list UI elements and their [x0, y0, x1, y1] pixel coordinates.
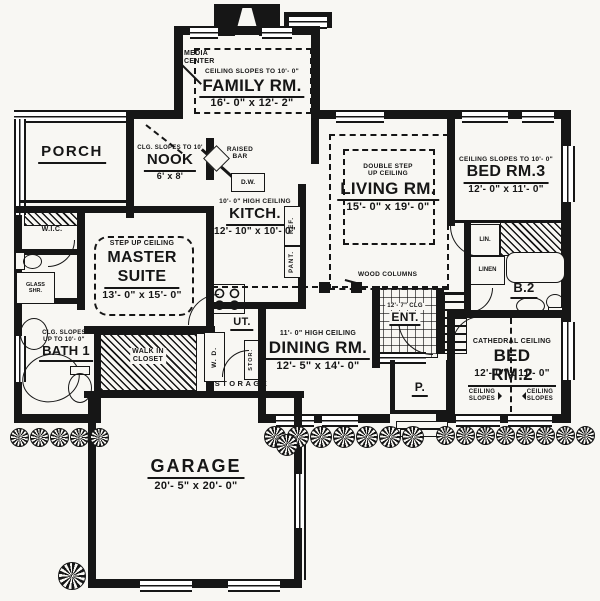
- slope-arrow-icon: [518, 392, 526, 400]
- living-room-dims: 15'- 0" x 19'- 0": [346, 201, 429, 213]
- entry-name: ENT.: [389, 311, 420, 326]
- wall: [447, 110, 455, 226]
- entry-ceiling-note: 12'- 7" CLG: [385, 303, 425, 310]
- window: [561, 146, 575, 202]
- door-swing: [48, 240, 75, 267]
- family-room-name: FAMILY RM.: [199, 76, 304, 98]
- linen-closet: LINEN: [470, 256, 505, 285]
- window: [190, 26, 218, 39]
- porch-name: PORCH: [38, 144, 106, 164]
- window: [462, 110, 508, 123]
- dining-ceiling-note: 11'- 0" HIGH CEILING: [280, 330, 356, 338]
- front-door: [380, 352, 426, 364]
- b2-name: B.2: [510, 281, 537, 299]
- wall: [174, 26, 183, 119]
- master-ceiling-note: STEP UP CEILING: [110, 240, 175, 248]
- window: [561, 322, 575, 380]
- wall: [14, 414, 96, 423]
- utility-name: UT.: [230, 316, 253, 331]
- door-swing: [222, 350, 249, 377]
- living-room-name: LIVING RM.: [337, 179, 439, 201]
- shrub: [58, 562, 86, 590]
- pantry: PANT.: [284, 246, 301, 278]
- wall: [84, 391, 304, 398]
- stor-label: STOR.: [248, 349, 254, 371]
- shrub: [276, 434, 298, 456]
- linen-label: LINEN: [479, 267, 497, 274]
- garage-name: GARAGE: [147, 456, 244, 479]
- stairs: [444, 292, 467, 354]
- bed3-name: BED RM.3: [464, 163, 549, 184]
- glass-shower: GLASS SHR.: [16, 272, 55, 304]
- garage-dims: 20'- 5" x 20'- 0": [154, 480, 237, 492]
- bed2-name: BED RM.2: [468, 346, 556, 387]
- porch-edge: [390, 410, 451, 414]
- bath1-name: BATH 1: [39, 344, 93, 362]
- closet-hatch: [24, 212, 78, 226]
- bed2-slope-left: CEILING SLOPES: [469, 389, 495, 402]
- toilet: [23, 254, 42, 269]
- wall: [77, 210, 85, 310]
- family-room-dims: 16'- 0" x 12'- 2": [210, 97, 293, 109]
- nook-dims: 6' x 8': [157, 171, 183, 181]
- window: [522, 110, 554, 123]
- dining-name: DINING RM.: [266, 338, 370, 360]
- bath1-ceiling-note: CLG. SLOPES UP TO 10'- 0": [42, 330, 86, 343]
- dishwasher-label: D.W.: [241, 179, 255, 186]
- wall: [84, 326, 215, 334]
- bed2-slope-right: CEILING SLOPES: [527, 389, 553, 402]
- dishwasher: D.W.: [231, 173, 265, 192]
- porch-edge: [20, 200, 128, 203]
- nook-name: NOOK: [144, 152, 196, 172]
- closet-hatch: [500, 222, 565, 256]
- kitchen-dims: 12'- 10" x 10'- 0": [214, 226, 296, 237]
- walkin-closet-label: WALK IN CLOSET: [130, 348, 166, 364]
- master-suite-dims: 13'- 0" x 15'- 0": [102, 290, 182, 302]
- window: [140, 579, 192, 592]
- wall: [311, 26, 320, 119]
- wood-column: [319, 282, 330, 293]
- glass-shower-label: GLASS SHR.: [26, 282, 45, 294]
- master-suite-name: MASTER SUITE: [104, 248, 179, 289]
- shrub-row: [436, 426, 595, 445]
- media-center-label: MEDIA CENTER: [184, 50, 215, 66]
- porch-railing: [14, 110, 132, 123]
- wall: [130, 110, 182, 119]
- lin-label: LIN.: [479, 237, 490, 244]
- walkway-edge: [304, 432, 306, 580]
- washer-dryer-label: W. D.: [211, 347, 218, 368]
- window: [262, 26, 292, 39]
- wall: [311, 110, 319, 164]
- living-ceiling-note: DOUBLE STEP UP CEILING: [363, 163, 413, 178]
- bed2-dims: 12'- 0" x 11'- 0": [474, 368, 550, 379]
- wic-label: W.I.C.: [42, 226, 63, 234]
- pantry-label: PANT.: [289, 251, 296, 273]
- raised-bar-label: RAISED BAR: [227, 146, 253, 161]
- wall: [436, 288, 444, 354]
- window: [228, 579, 280, 592]
- wall: [88, 391, 96, 588]
- entry-porch-label: P.: [412, 381, 428, 397]
- family-ceiling-note: CEILING SLOPES TO 10'- 0": [205, 68, 299, 75]
- porch-edge: [390, 360, 395, 414]
- floor-plan: D.W. REF. PANT. LIN. LINEN: [0, 0, 600, 601]
- slope-arrow-icon: [498, 392, 506, 400]
- storage-label: STORAGE: [215, 380, 269, 388]
- window: [336, 110, 384, 123]
- kitchen-name: KITCH.: [226, 206, 284, 226]
- bed2-ceiling-note: CATHEDRAL CEILING: [473, 338, 551, 346]
- shrub-row: [10, 428, 109, 447]
- wall: [14, 215, 22, 423]
- porch-edge: [446, 360, 451, 414]
- wood-columns-label: WOOD COLUMNS: [358, 271, 417, 278]
- bathtub: [506, 252, 565, 283]
- bed3-dims: 12'- 0" x 11'- 0": [468, 184, 544, 195]
- dining-dims: 12'- 5" x 14'- 0": [276, 360, 359, 372]
